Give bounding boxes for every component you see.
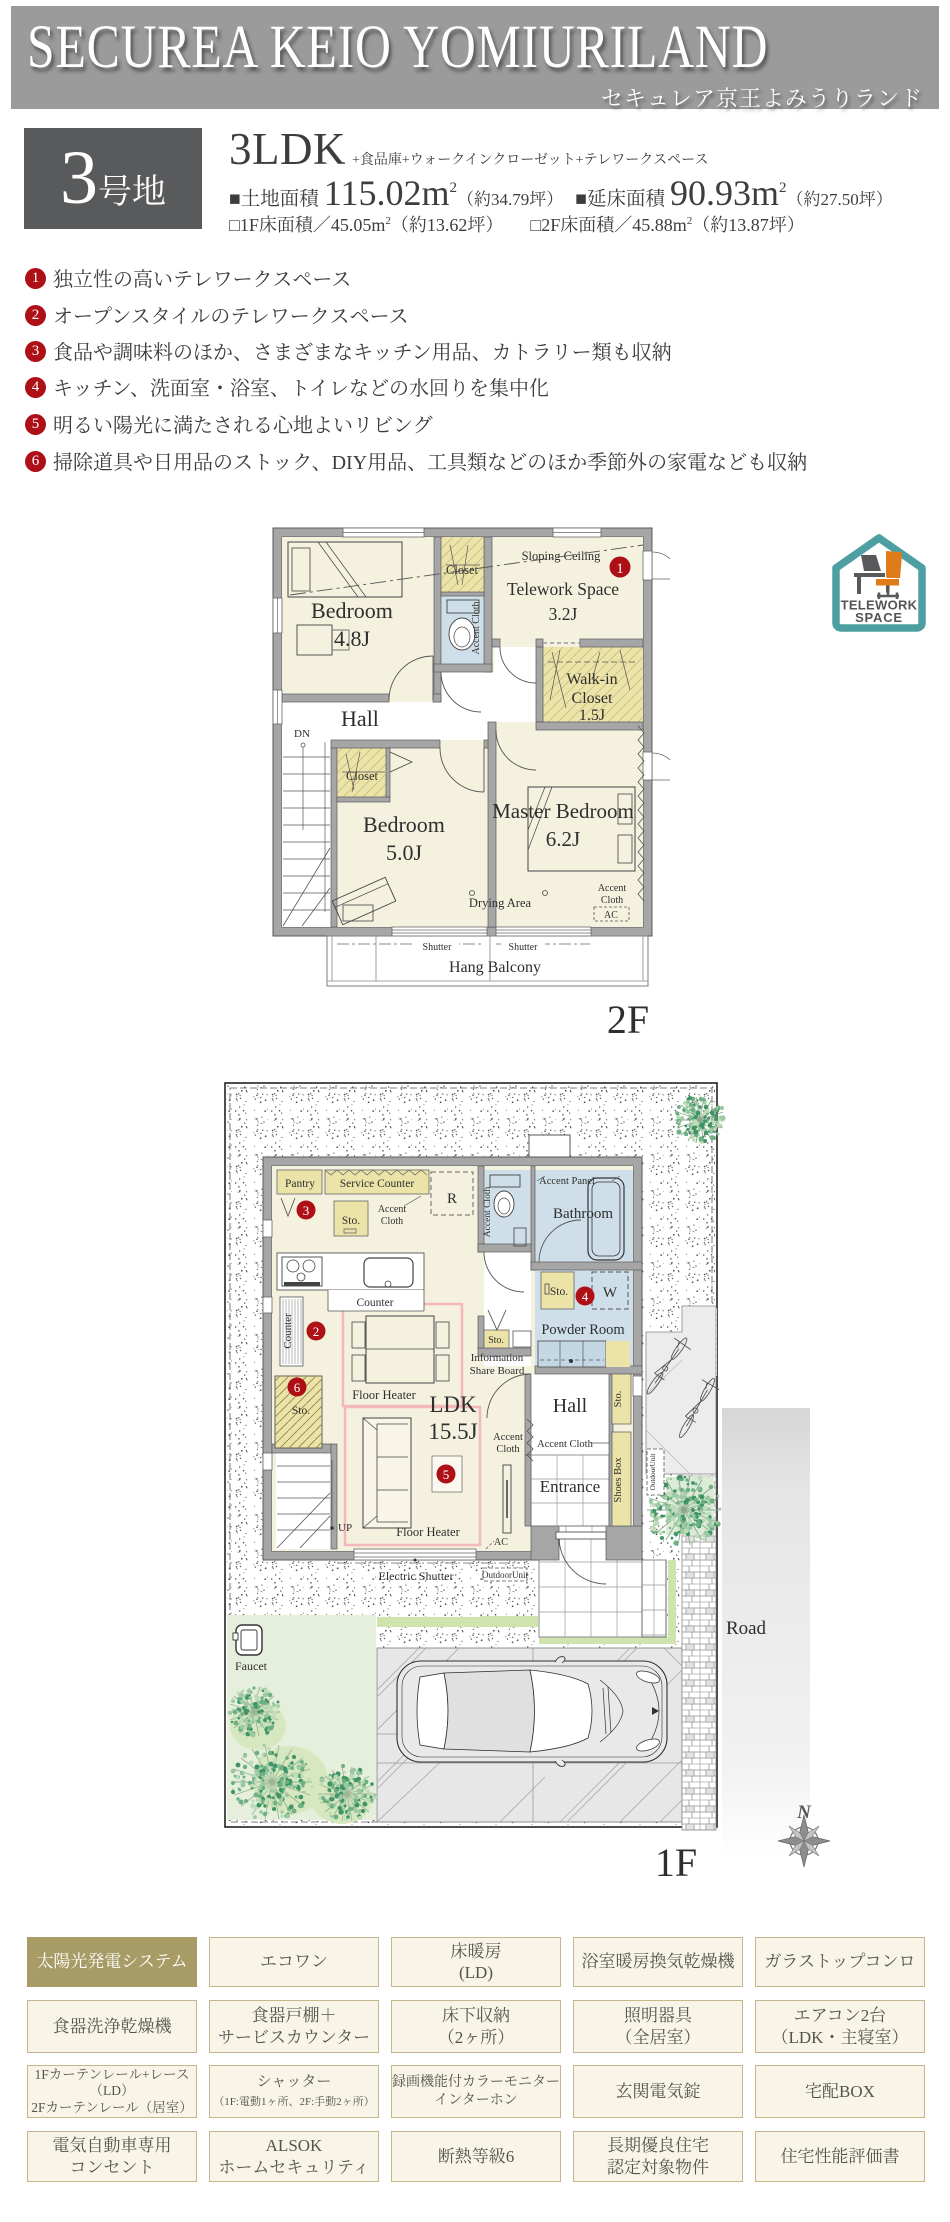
svg-text:Accent Cloth: Accent Cloth	[537, 1439, 593, 1450]
svg-text:Closet: Closet	[446, 563, 478, 577]
svg-text:Cloth: Cloth	[496, 1444, 520, 1455]
svg-text:AC: AC	[604, 910, 618, 921]
svg-text:3.2J: 3.2J	[549, 604, 578, 624]
svg-text:Shutter: Shutter	[423, 942, 453, 953]
svg-text:Accent Panel: Accent Panel	[539, 1176, 595, 1187]
svg-text:Accent Cloth: Accent Cloth	[471, 601, 482, 654]
svg-text:Sto.: Sto.	[613, 1391, 624, 1408]
svg-text:Shutter: Shutter	[509, 942, 539, 953]
svg-text:Floor Heater: Floor Heater	[396, 1525, 460, 1539]
svg-text:6: 6	[294, 1380, 301, 1395]
svg-text:OutdoorUnit: OutdoorUnit	[482, 1570, 528, 1580]
svg-text:LDK: LDK	[429, 1392, 477, 1417]
svg-text:Accent Cloth: Accent Cloth	[483, 1187, 493, 1238]
svg-text:Hall: Hall	[553, 1395, 588, 1417]
svg-text:UP: UP	[338, 1522, 352, 1534]
svg-text:Sto.: Sto.	[550, 1286, 568, 1298]
svg-text:Electric Shutter: Electric Shutter	[379, 1569, 454, 1583]
svg-text:Sloping Ceiling: Sloping Ceiling	[522, 549, 602, 563]
svg-text:Accent: Accent	[378, 1204, 407, 1215]
svg-text:Counter: Counter	[282, 1313, 294, 1349]
svg-text:Counter: Counter	[356, 1297, 393, 1309]
svg-text:DN: DN	[294, 728, 310, 740]
svg-text:Sto.: Sto.	[292, 1405, 310, 1417]
svg-text:2: 2	[313, 1324, 320, 1339]
svg-text:15.5J: 15.5J	[428, 1419, 477, 1444]
svg-text:Road: Road	[726, 1618, 767, 1639]
svg-text:Telework Space: Telework Space	[507, 579, 619, 599]
svg-text:Pantry: Pantry	[285, 1178, 315, 1190]
svg-text:Information: Information	[471, 1352, 524, 1364]
svg-text:4: 4	[582, 1289, 589, 1304]
svg-text:AC: AC	[494, 1537, 508, 1548]
svg-text:Faucet: Faucet	[235, 1659, 268, 1673]
svg-text:Entrance: Entrance	[540, 1477, 600, 1496]
svg-text:Powder Room: Powder Room	[541, 1322, 625, 1338]
svg-text:1.5J: 1.5J	[579, 707, 605, 724]
svg-text:4.8J: 4.8J	[334, 626, 371, 651]
svg-text:N: N	[796, 1802, 812, 1823]
svg-text:Accent: Accent	[493, 1432, 523, 1443]
svg-text:Walk-in: Walk-in	[566, 671, 617, 688]
svg-text:Hall: Hall	[341, 706, 379, 731]
svg-text:1: 1	[616, 561, 624, 577]
svg-text:Sto.: Sto.	[342, 1215, 360, 1227]
svg-text:Floor Heater: Floor Heater	[352, 1388, 416, 1402]
svg-text:1F: 1F	[655, 1840, 697, 1885]
svg-text:Closet: Closet	[572, 690, 613, 707]
svg-text:Master Bedroom: Master Bedroom	[492, 799, 634, 823]
svg-text:5.0J: 5.0J	[386, 840, 423, 865]
svg-text:Cloth: Cloth	[601, 895, 623, 906]
svg-text:OutdoorUnit: OutdoorUnit	[649, 1454, 657, 1491]
svg-text:Bathroom: Bathroom	[553, 1206, 613, 1222]
svg-text:6.2J: 6.2J	[546, 827, 580, 851]
svg-text:Hang Balcony: Hang Balcony	[449, 959, 541, 976]
svg-text:3: 3	[303, 1203, 310, 1218]
svg-text:Bedroom: Bedroom	[363, 812, 445, 837]
svg-text:Accent: Accent	[598, 883, 627, 894]
svg-text:Drying Area: Drying Area	[469, 896, 532, 910]
svg-text:Closet: Closet	[346, 769, 378, 783]
svg-text:Cloth: Cloth	[381, 1216, 403, 1227]
svg-text:Bedroom: Bedroom	[311, 598, 393, 623]
svg-text:2F: 2F	[607, 997, 649, 1042]
svg-text:Shoes Box: Shoes Box	[613, 1457, 624, 1503]
svg-text:5: 5	[443, 1467, 450, 1482]
svg-text:Sto.: Sto.	[488, 1335, 504, 1346]
svg-text:Service Counter: Service Counter	[340, 1178, 415, 1190]
svg-text:Share Board: Share Board	[470, 1365, 525, 1377]
svg-text:W: W	[603, 1285, 618, 1301]
svg-text:SPACE: SPACE	[855, 610, 903, 625]
svg-text:R: R	[447, 1191, 457, 1207]
